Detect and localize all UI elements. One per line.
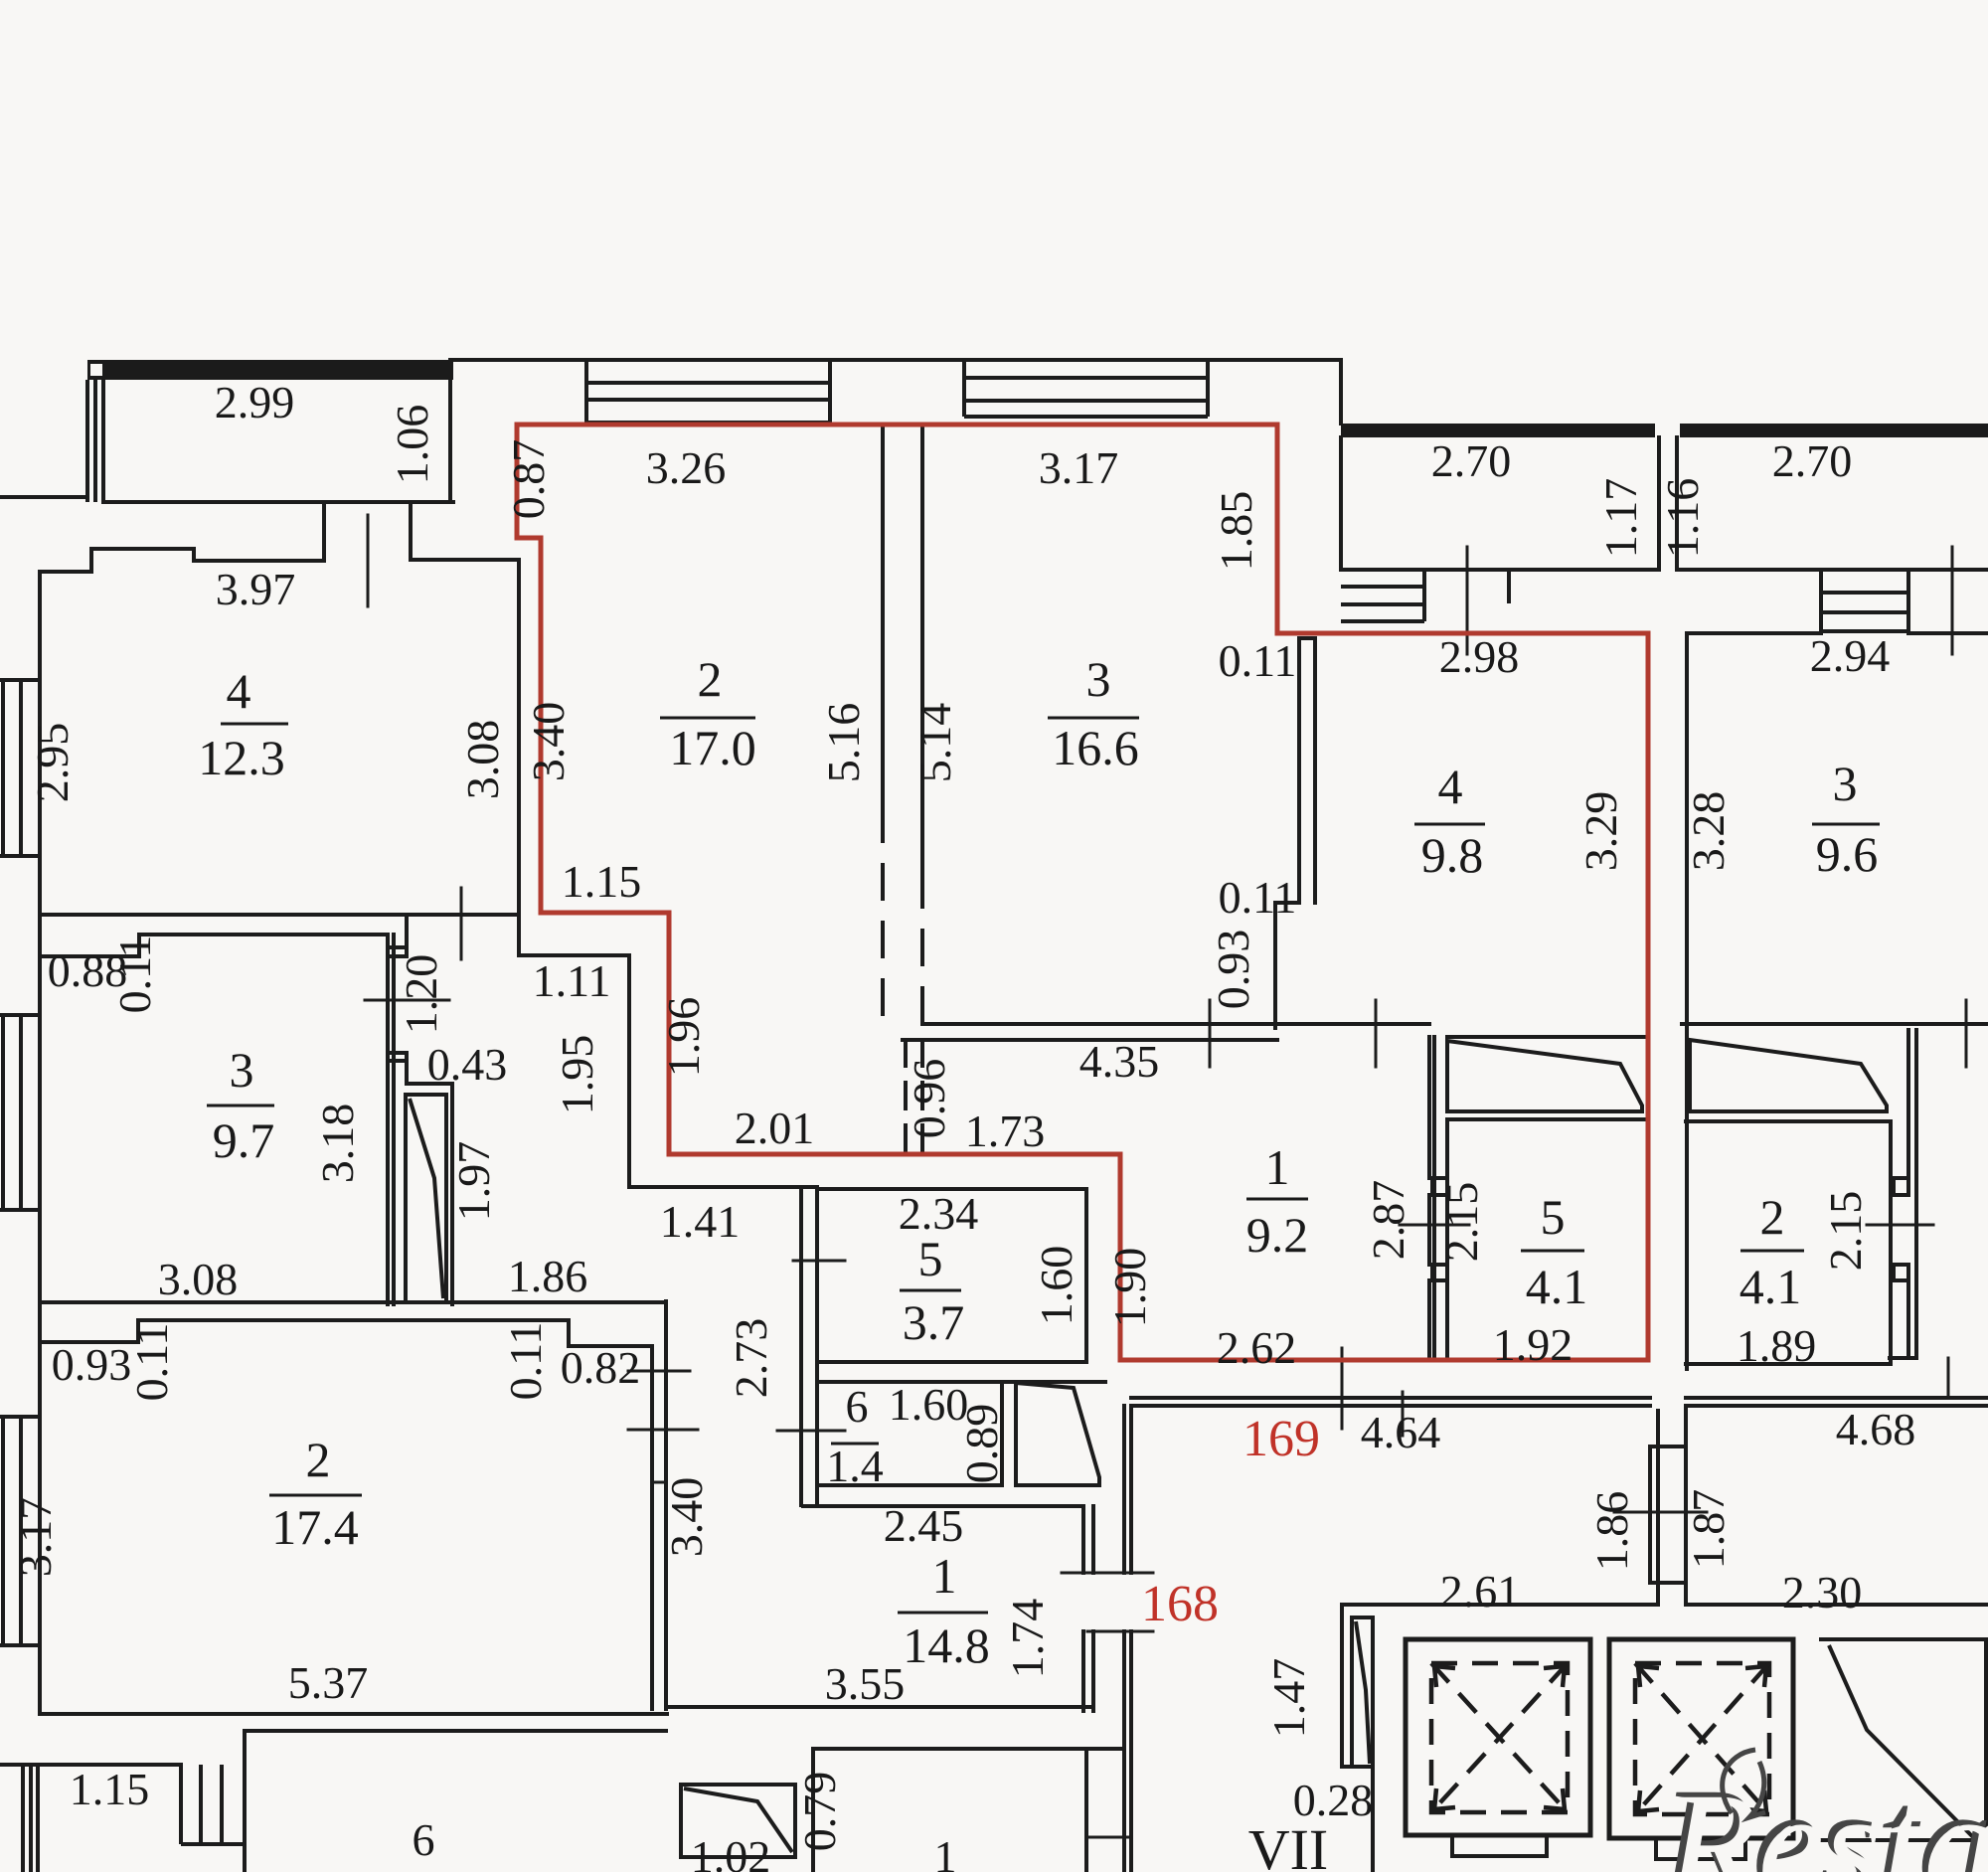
svg-text:0.43: 0.43 (427, 1039, 508, 1090)
svg-text:0.87: 0.87 (503, 439, 554, 520)
svg-text:1.02: 1.02 (691, 1831, 771, 1872)
svg-text:0.89: 0.89 (956, 1404, 1007, 1484)
svg-text:1.85: 1.85 (1211, 491, 1261, 572)
svg-text:1.16: 1.16 (1657, 478, 1708, 559)
svg-text:4: 4 (1438, 759, 1463, 814)
svg-text:1.47: 1.47 (1263, 1658, 1314, 1739)
svg-text:2.15: 2.15 (1820, 1191, 1871, 1272)
svg-text:2: 2 (1760, 1189, 1785, 1245)
svg-text:1.92: 1.92 (1493, 1319, 1574, 1370)
svg-text:3.17: 3.17 (1039, 442, 1119, 493)
svg-text:2.01: 2.01 (735, 1103, 815, 1153)
svg-text:1.97: 1.97 (448, 1141, 499, 1222)
svg-text:3.55: 3.55 (825, 1658, 906, 1709)
svg-text:3: 3 (1833, 756, 1858, 811)
svg-text:4.1: 4.1 (1739, 1259, 1802, 1314)
svg-text:2.30: 2.30 (1782, 1567, 1863, 1617)
svg-text:3.40: 3.40 (661, 1477, 712, 1558)
svg-text:0.11: 0.11 (109, 936, 160, 1014)
svg-text:2.99: 2.99 (215, 377, 295, 427)
svg-text:1.74: 1.74 (1002, 1599, 1053, 1679)
svg-text:5.37: 5.37 (288, 1657, 369, 1708)
svg-text:9.7: 9.7 (213, 1112, 275, 1168)
svg-text:5.16: 5.16 (818, 703, 869, 783)
svg-text:1.90: 1.90 (1104, 1248, 1155, 1328)
svg-text:3: 3 (230, 1042, 254, 1098)
svg-text:0.93: 0.93 (1208, 930, 1258, 1010)
svg-text:9.6: 9.6 (1816, 826, 1879, 882)
svg-text:4.64: 4.64 (1361, 1407, 1441, 1457)
svg-text:5: 5 (918, 1231, 943, 1286)
svg-text:4: 4 (227, 663, 251, 719)
svg-text:0.11: 0.11 (500, 1322, 551, 1401)
svg-text:1.86: 1.86 (1586, 1491, 1637, 1572)
svg-text:1.60: 1.60 (1031, 1246, 1081, 1326)
svg-text:17.4: 17.4 (271, 1499, 359, 1555)
svg-text:1.95: 1.95 (552, 1035, 602, 1115)
svg-text:2.62: 2.62 (1217, 1322, 1297, 1373)
svg-text:17.0: 17.0 (669, 720, 756, 775)
svg-text:168: 168 (1141, 1576, 1219, 1632)
svg-text:0.82: 0.82 (561, 1342, 641, 1393)
svg-text:0.93: 0.93 (52, 1339, 132, 1390)
svg-text:4.68: 4.68 (1836, 1404, 1916, 1454)
svg-text:4.35: 4.35 (1079, 1036, 1160, 1087)
svg-text:1: 1 (1265, 1139, 1290, 1195)
svg-text:3.08: 3.08 (158, 1254, 239, 1304)
svg-text:2.70: 2.70 (1431, 435, 1512, 486)
svg-text:12.3: 12.3 (198, 730, 285, 785)
svg-text:2.95: 2.95 (27, 723, 78, 803)
svg-text:1: 1 (932, 1548, 957, 1604)
svg-text:1.87: 1.87 (1683, 1489, 1734, 1570)
svg-text:1.15: 1.15 (562, 856, 642, 907)
svg-text:2.73: 2.73 (726, 1318, 776, 1399)
svg-text:3.26: 3.26 (646, 442, 727, 493)
svg-text:4.1: 4.1 (1526, 1259, 1588, 1314)
svg-text:2.61: 2.61 (1440, 1566, 1521, 1617)
svg-text:3.40: 3.40 (523, 702, 574, 782)
svg-text:1.17: 1.17 (1595, 478, 1646, 559)
svg-text:3.7: 3.7 (903, 1294, 965, 1350)
svg-text:1.73: 1.73 (965, 1106, 1046, 1156)
svg-text:1.20: 1.20 (396, 954, 446, 1035)
svg-text:1.86: 1.86 (508, 1251, 588, 1301)
svg-text:3.28: 3.28 (1683, 791, 1734, 872)
svg-text:2.94: 2.94 (1810, 630, 1891, 681)
svg-text:0.79: 0.79 (794, 1772, 845, 1852)
svg-text:2.98: 2.98 (1439, 631, 1520, 682)
svg-text:3.08: 3.08 (457, 720, 508, 800)
svg-text:0.11: 0.11 (1219, 872, 1297, 923)
svg-text:9.2: 9.2 (1246, 1207, 1309, 1263)
svg-text:2: 2 (306, 1432, 331, 1487)
svg-text:6: 6 (846, 1381, 869, 1432)
svg-text:3.97: 3.97 (216, 564, 296, 614)
svg-text:0.11: 0.11 (1219, 635, 1297, 686)
svg-text:1.96: 1.96 (658, 997, 709, 1078)
svg-text:1.11: 1.11 (533, 955, 611, 1006)
svg-text:16.6: 16.6 (1052, 720, 1139, 775)
svg-text:2.45: 2.45 (884, 1500, 964, 1551)
svg-text:2: 2 (698, 651, 723, 707)
svg-text:14.8: 14.8 (903, 1617, 990, 1673)
svg-text:5: 5 (1541, 1189, 1566, 1245)
svg-text:Restate: Restate (1666, 1763, 1988, 1872)
svg-text:1: 1 (934, 1831, 957, 1872)
svg-text:2.15: 2.15 (1436, 1182, 1487, 1263)
svg-text:5.14: 5.14 (910, 703, 960, 783)
svg-text:1.89: 1.89 (1737, 1320, 1817, 1371)
svg-text:1.06: 1.06 (387, 405, 437, 485)
svg-text:1.41: 1.41 (660, 1196, 741, 1247)
svg-text:3: 3 (1086, 651, 1111, 707)
svg-text:6: 6 (413, 1814, 435, 1865)
svg-text:0.11: 0.11 (126, 1323, 177, 1402)
svg-text:3.17: 3.17 (10, 1497, 61, 1578)
svg-text:9.8: 9.8 (1421, 827, 1484, 883)
svg-text:3.18: 3.18 (312, 1104, 363, 1184)
svg-text:1.4: 1.4 (826, 1441, 884, 1491)
svg-text:3.29: 3.29 (1575, 791, 1626, 872)
svg-text:0.96: 0.96 (904, 1059, 954, 1139)
svg-text:2.70: 2.70 (1772, 435, 1853, 486)
svg-text:2.87: 2.87 (1363, 1180, 1413, 1261)
svg-text:169: 169 (1242, 1411, 1320, 1467)
svg-text:1.15: 1.15 (70, 1764, 150, 1814)
svg-text:VII: VII (1248, 1817, 1329, 1872)
